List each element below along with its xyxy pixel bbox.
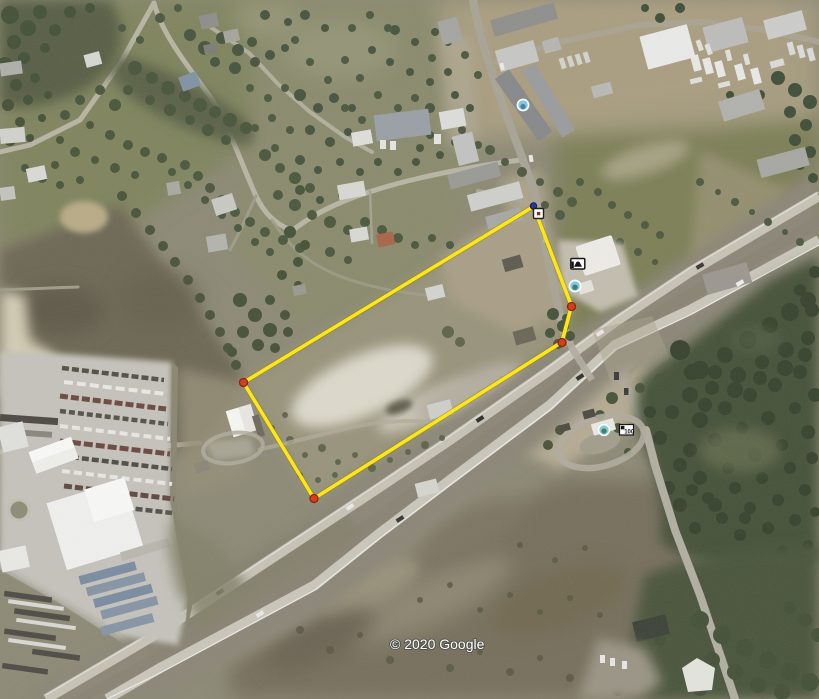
svg-text:© 2020 Google: © 2020 Google xyxy=(390,636,485,652)
